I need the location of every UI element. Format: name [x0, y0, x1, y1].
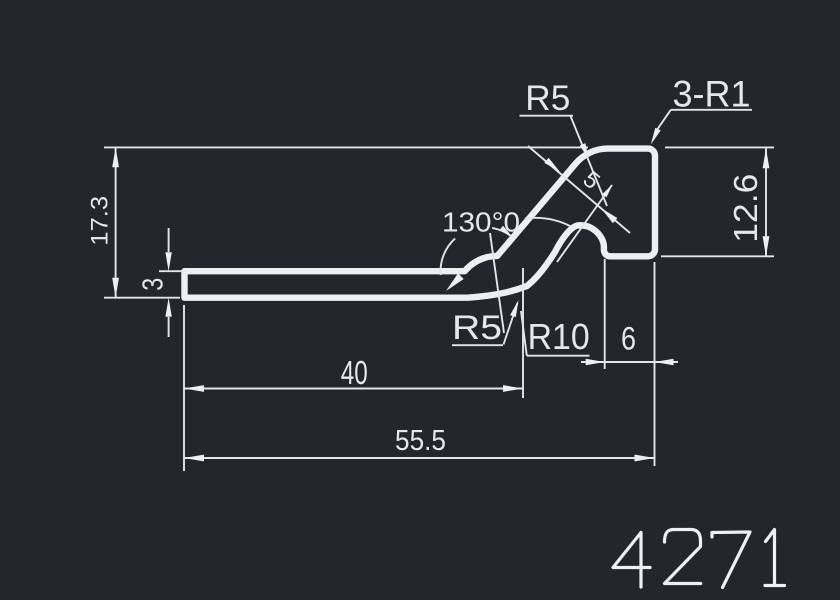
- svg-text:40: 40: [341, 355, 368, 392]
- svg-text:55.5: 55.5: [395, 425, 446, 457]
- svg-text:3: 3: [138, 278, 170, 291]
- svg-text:R10: R10: [528, 316, 590, 357]
- svg-text:R5: R5: [452, 309, 502, 347]
- svg-text:3-R1: 3-R1: [673, 73, 751, 114]
- svg-text:17.3: 17.3: [87, 196, 114, 246]
- svg-text:6: 6: [621, 321, 636, 357]
- svg-text:R5: R5: [525, 79, 570, 118]
- svg-text:12.6: 12.6: [728, 174, 765, 243]
- svg-text:130°0: 130°0: [442, 207, 520, 238]
